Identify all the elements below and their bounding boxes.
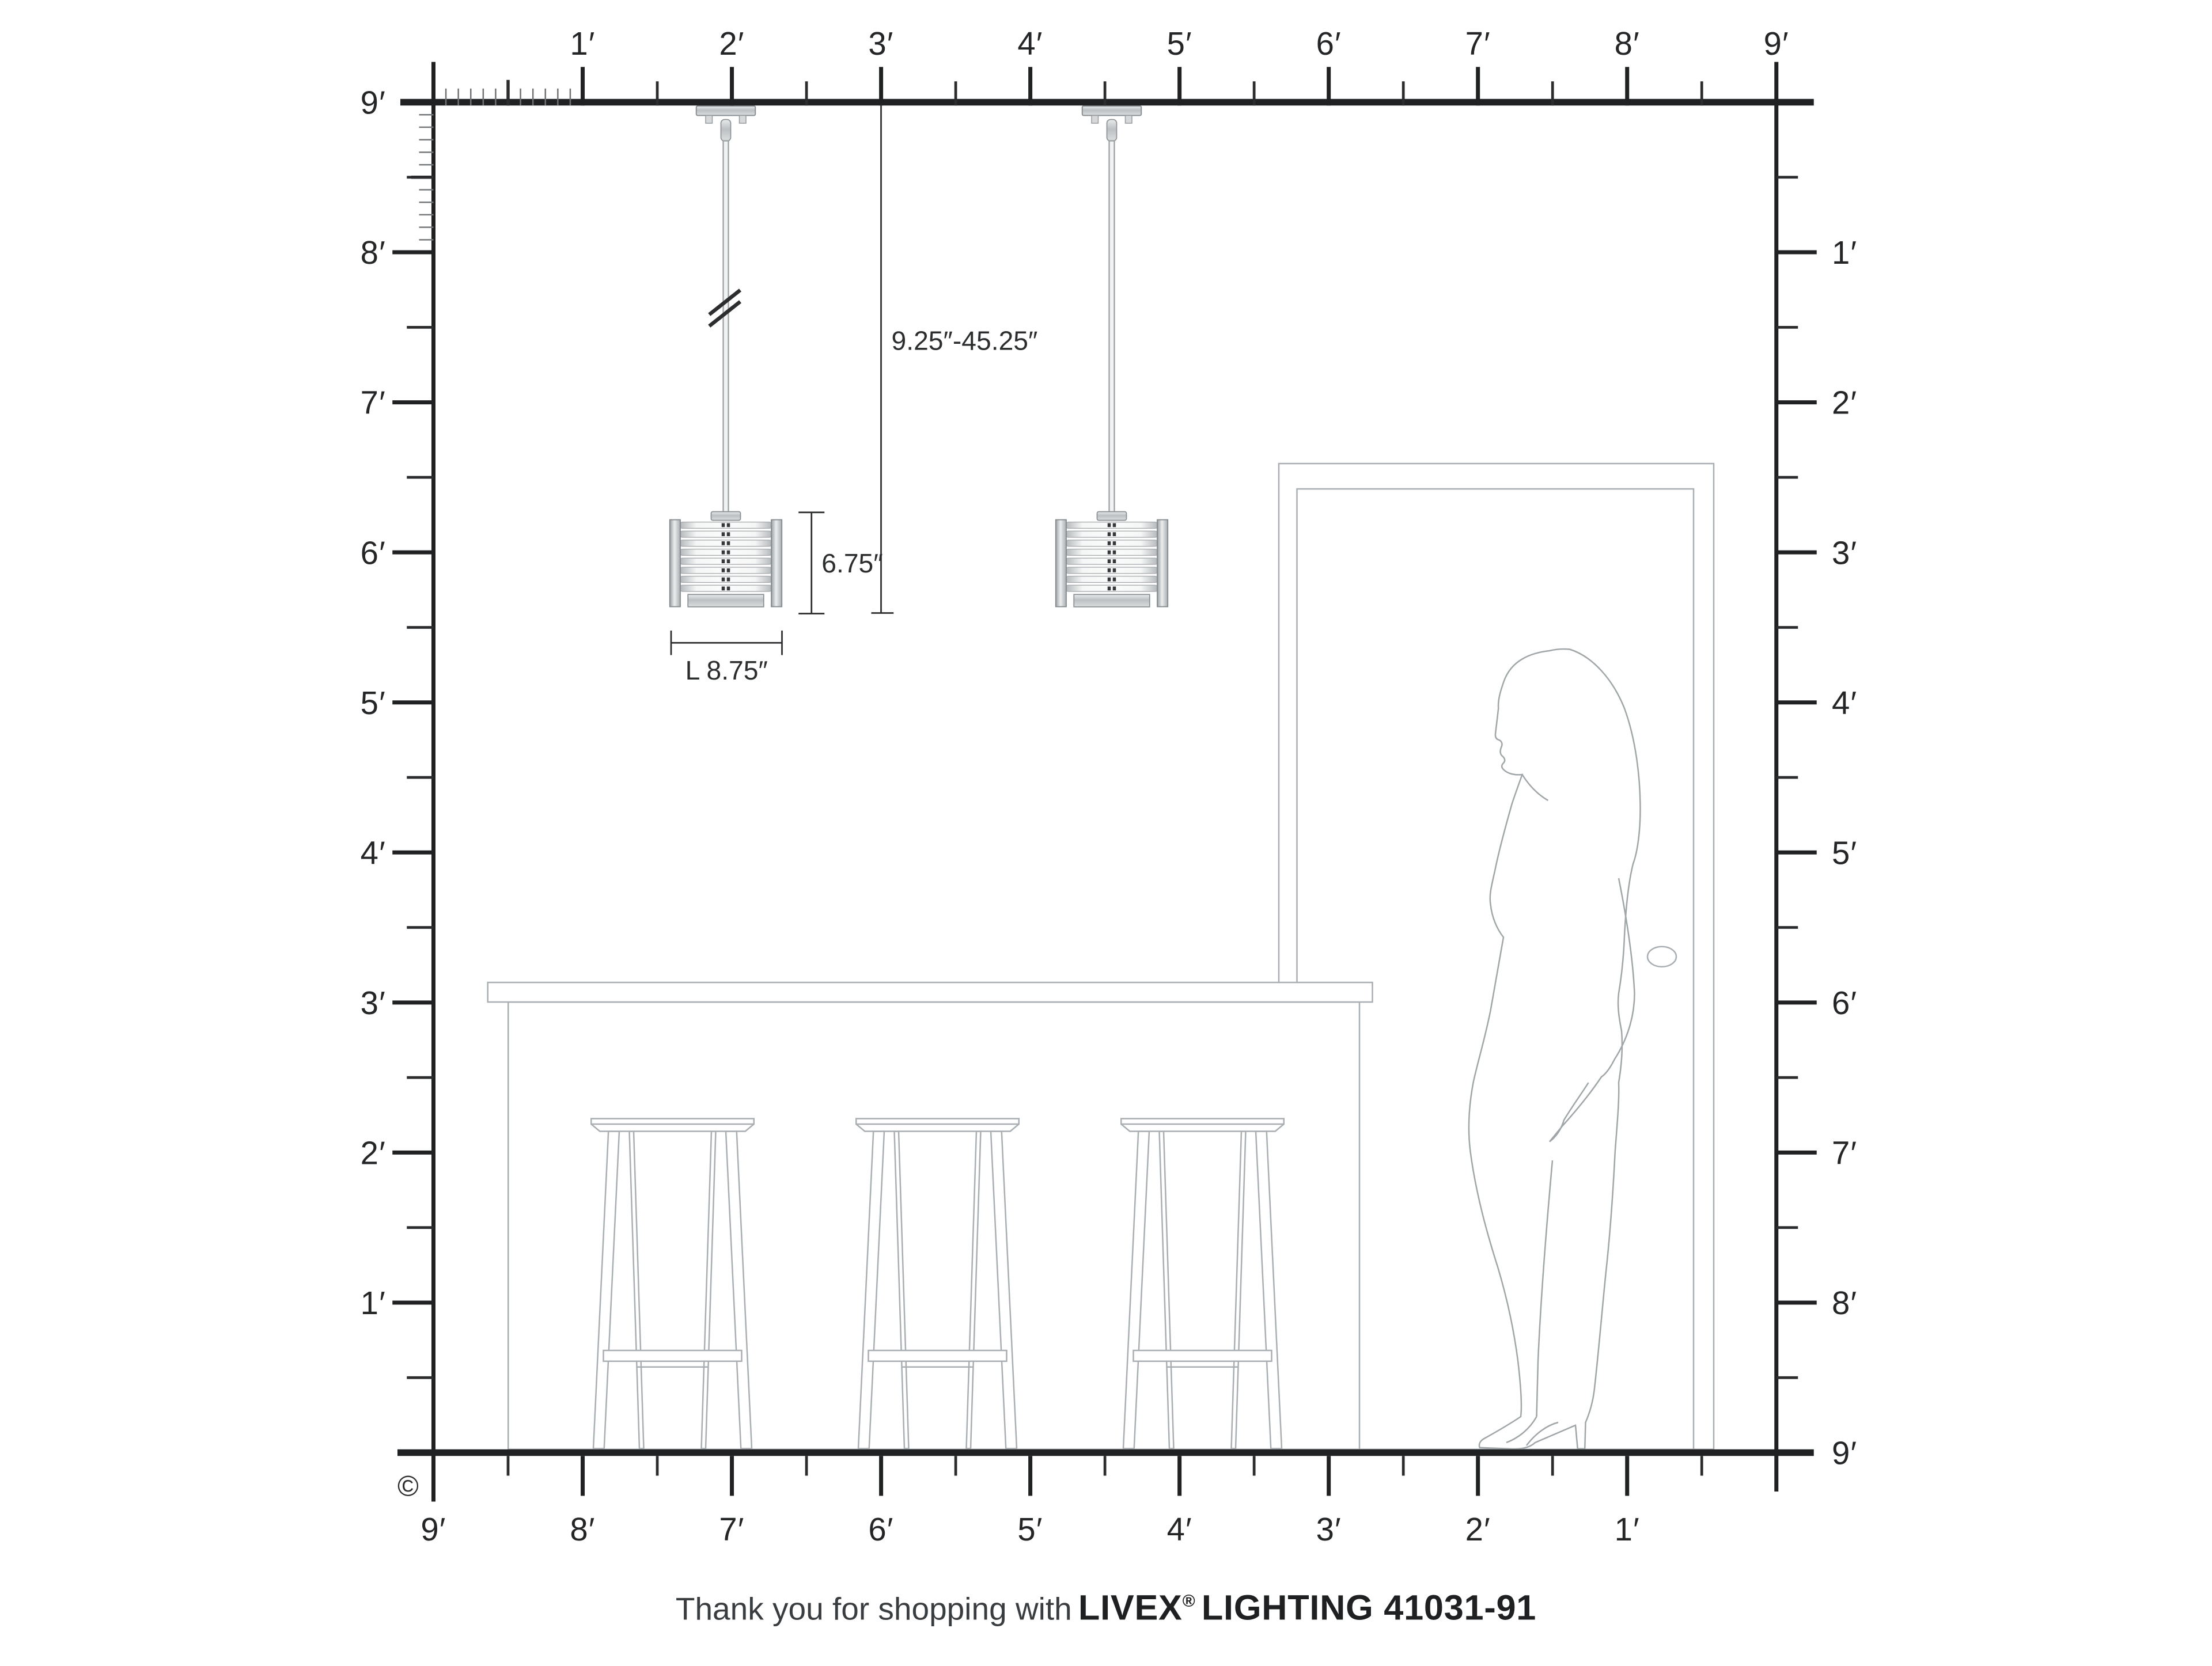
footer: Thank you for shopping with LIVEX® LIGHT… bbox=[0, 1589, 2212, 1630]
top-ruler-labels: 1′ 2′ 3′ 4′ 5′ 6′ 7′ 8′ 9′ bbox=[570, 25, 1789, 62]
ruler-label: 4′ bbox=[1832, 685, 1857, 721]
ruler-label: 4′ bbox=[361, 834, 386, 871]
ruler-label: 3′ bbox=[868, 25, 893, 62]
ruler-label: 9′ bbox=[361, 85, 386, 121]
spec-sheet-page: 9.25″-45.25″ 6.75″ L 8.75″ 1′ 2′ 3′ 4′ 5… bbox=[0, 0, 2212, 1659]
dimension-hang-range: 9.25″-45.25″ bbox=[872, 105, 1038, 613]
ruler-label: 5′ bbox=[361, 685, 386, 721]
footer-product-text: LIGHTING 41031-91 bbox=[1202, 1589, 1536, 1629]
ruler-label: 1′ bbox=[570, 25, 595, 62]
ceiling-line bbox=[400, 99, 1814, 105]
ruler-label: 8′ bbox=[1832, 1285, 1857, 1321]
island-countertop bbox=[488, 982, 1373, 1002]
ruler-label: 1′ bbox=[361, 1285, 386, 1321]
door-knob-icon bbox=[1647, 947, 1676, 967]
left-ruler-ticks bbox=[392, 115, 433, 1377]
ruler-label: 7′ bbox=[361, 385, 386, 421]
ruler-label: 1′ bbox=[1832, 234, 1857, 271]
diagram-canvas: 9.25″-45.25″ 6.75″ L 8.75″ 1′ 2′ 3′ 4′ 5… bbox=[0, 0, 2212, 1659]
ruler-label: 4′ bbox=[1017, 25, 1043, 62]
hang-range-label: 9.25″-45.25″ bbox=[892, 326, 1038, 356]
ruler-label: 2′ bbox=[719, 25, 744, 62]
ruler-label: 5′ bbox=[1167, 25, 1192, 62]
bottom-ruler-labels: 9′ 8′ 7′ 6′ 5′ 4′ 3′ 2′ 1′ bbox=[421, 1511, 1640, 1547]
woman-silhouette bbox=[1469, 649, 1641, 1449]
ruler-label: 6′ bbox=[1316, 25, 1342, 62]
registered-trademark-icon: ® bbox=[1183, 1591, 1195, 1611]
copyright-symbol: © bbox=[397, 1471, 419, 1505]
fixture-length-label: L 8.75″ bbox=[685, 655, 768, 685]
left-ruler-labels: 9′ 8′ 7′ 6′ 5′ 4′ 3′ 2′ 1′ bbox=[361, 85, 386, 1322]
bottom-ruler-ticks bbox=[434, 1456, 1702, 1496]
pendant-light-2 bbox=[1056, 106, 1168, 607]
ruler-label: 3′ bbox=[1316, 1511, 1342, 1547]
ruler-label: 5′ bbox=[1017, 1511, 1043, 1547]
ruler-label: 1′ bbox=[1615, 1511, 1640, 1547]
pendant-light-1 bbox=[670, 106, 782, 607]
ruler-label: 2′ bbox=[1465, 1511, 1491, 1547]
ruler-label: 7′ bbox=[1465, 25, 1491, 62]
right-ruler-labels: 1′ 2′ 3′ 4′ 5′ 6′ 7′ 8′ 9′ bbox=[1832, 234, 1857, 1471]
ruler-label: 2′ bbox=[1832, 385, 1857, 421]
ruler-label: 2′ bbox=[361, 1135, 386, 1171]
ruler-label: 9′ bbox=[421, 1511, 446, 1547]
floor-line bbox=[397, 1449, 1814, 1456]
ruler-label: 3′ bbox=[1832, 534, 1857, 571]
ruler-label: 9′ bbox=[1764, 25, 1789, 62]
ruler-label: 5′ bbox=[1832, 834, 1857, 871]
ruler-label: 4′ bbox=[1167, 1511, 1192, 1547]
ruler-label: 8′ bbox=[361, 234, 386, 271]
footer-brand-text: LIVEX bbox=[1078, 1589, 1183, 1629]
fixture-height-label: 6.75″ bbox=[821, 548, 882, 578]
ruler-label: 6′ bbox=[361, 534, 386, 571]
ruler-label: 8′ bbox=[570, 1511, 595, 1547]
ruler-label: 9′ bbox=[1832, 1435, 1857, 1471]
footer-thankyou-text: Thank you for shopping with bbox=[676, 1591, 1072, 1627]
ruler-label: 7′ bbox=[719, 1511, 744, 1547]
ruler-label: 8′ bbox=[1615, 25, 1640, 62]
ruler-label: 3′ bbox=[361, 985, 386, 1021]
right-ruler-ticks bbox=[1777, 177, 1817, 1377]
ruler-label: 6′ bbox=[868, 1511, 893, 1547]
dimension-fixture-length: L 8.75″ bbox=[671, 631, 782, 685]
ruler-label: 6′ bbox=[1832, 985, 1857, 1021]
ruler-label: 7′ bbox=[1832, 1135, 1857, 1171]
dimension-fixture-height: 6.75″ bbox=[798, 513, 882, 614]
